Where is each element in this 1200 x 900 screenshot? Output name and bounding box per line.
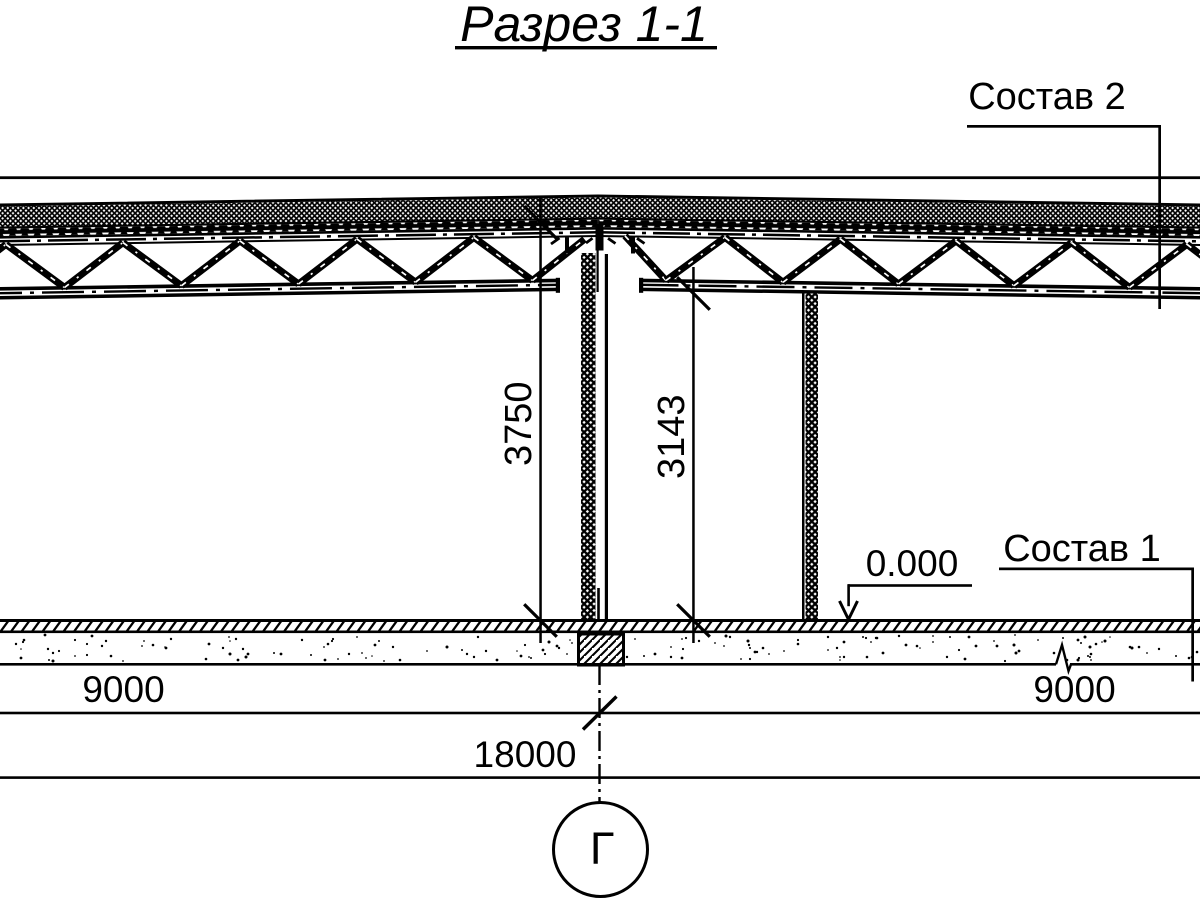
svg-text:18000: 18000 xyxy=(474,734,577,775)
svg-text:Г: Г xyxy=(590,823,614,874)
svg-text:0.000: 0.000 xyxy=(866,543,959,584)
svg-text:Состав 2: Состав 2 xyxy=(968,76,1126,118)
svg-text:9000: 9000 xyxy=(82,669,164,710)
svg-text:9000: 9000 xyxy=(1033,669,1115,710)
svg-text:Разрез 1-1: Разрез 1-1 xyxy=(460,0,708,52)
svg-text:Состав 1: Состав 1 xyxy=(1003,528,1161,570)
svg-text:3143: 3143 xyxy=(651,394,693,479)
svg-text:3750: 3750 xyxy=(498,381,540,466)
